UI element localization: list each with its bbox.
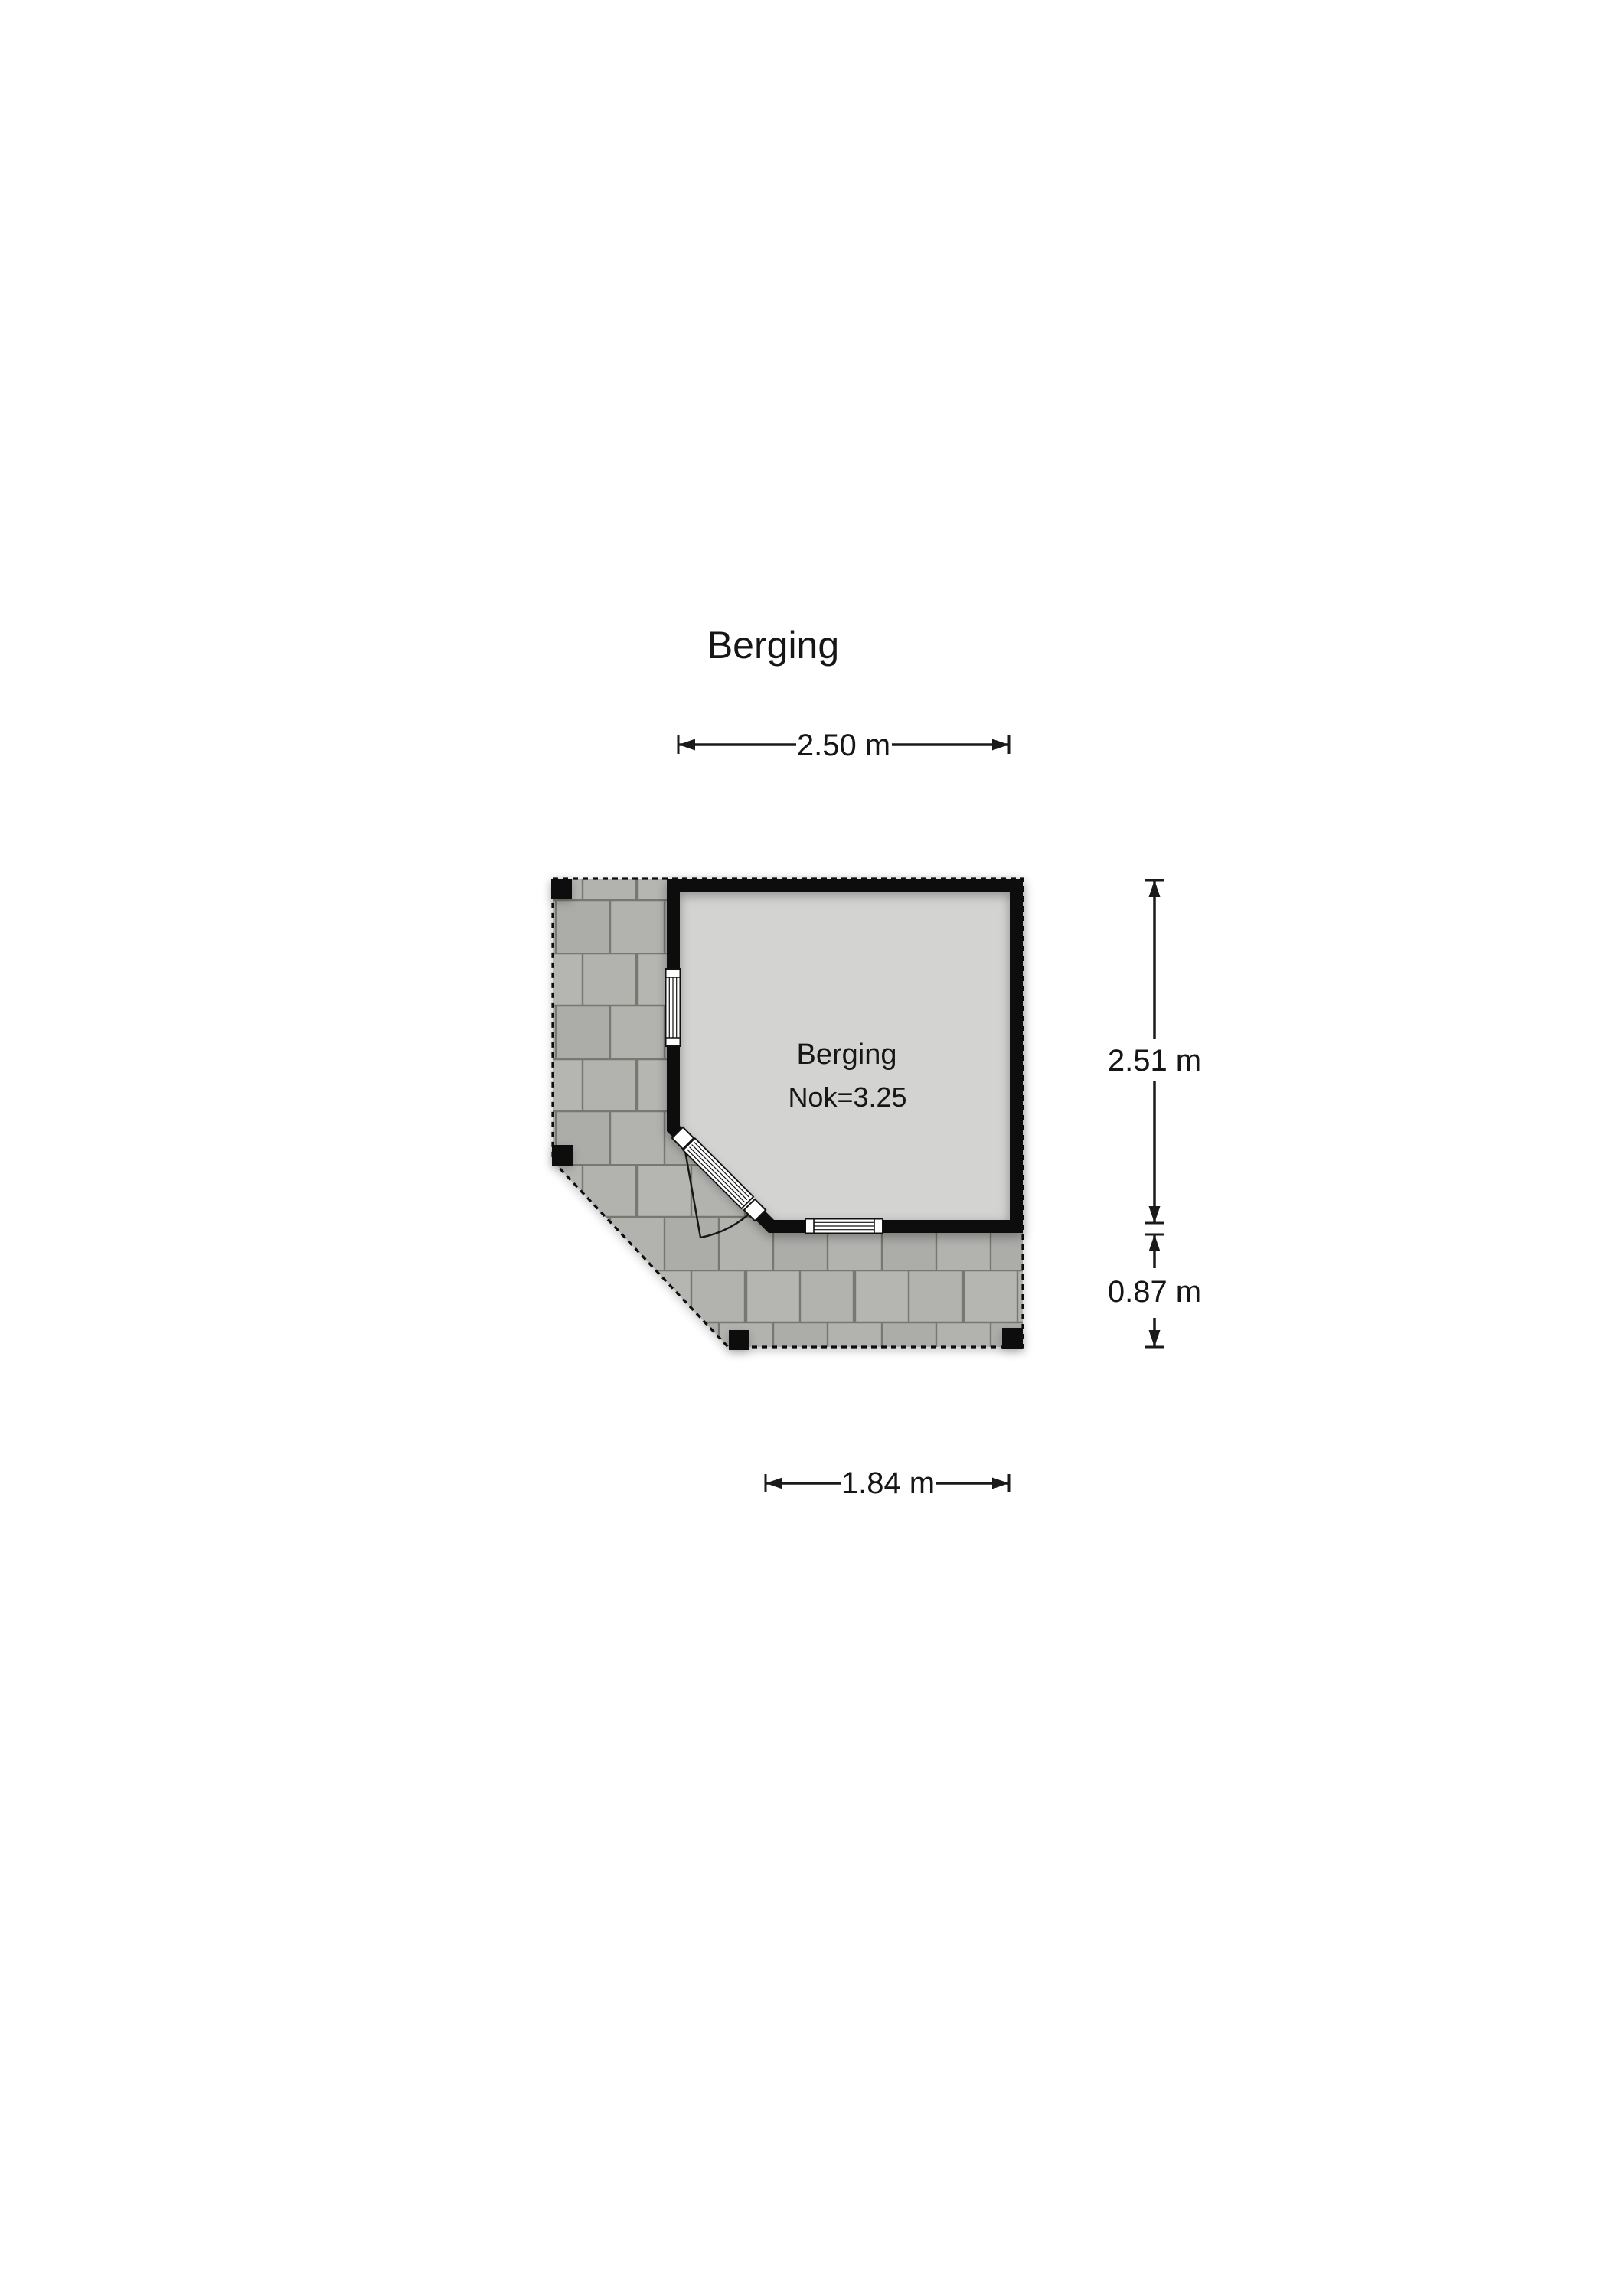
room-name-label: Berging [797,1039,897,1071]
dimension-top: 2.50 m [678,729,1009,762]
corner-post-mid-left [552,1145,573,1166]
window-left [666,969,681,1046]
corner-post-bottom-right [1002,1328,1023,1349]
dimension-right-lower-label: 0.87 m [1108,1275,1201,1309]
arrow-left-icon [678,739,695,751]
floorplan: Berging Nok=3.25 [551,879,1023,1350]
corner-post-bottom-center [729,1330,749,1350]
arrow-down-icon [1149,1206,1161,1223]
arrow-up-icon [1149,1234,1161,1251]
dimension-right-lower: 0.87 m [1108,1234,1201,1347]
arrow-up-icon [1149,880,1161,897]
dimension-bottom-label: 1.84 m [841,1466,935,1500]
arrow-right-icon [992,1478,1009,1489]
arrow-down-icon [1149,1330,1161,1347]
dimension-right-upper-label: 2.51 m [1108,1044,1201,1078]
dimension-top-label: 2.50 m [797,729,890,762]
page-title: Berging [707,624,839,667]
arrow-left-icon [766,1478,782,1489]
dimension-right-upper: 2.51 m [1108,880,1201,1223]
room-ridge-label: Nok=3.25 [788,1081,906,1113]
dimension-bottom: 1.84 m [766,1466,1009,1500]
corner-post-top-left [551,879,572,899]
arrow-right-icon [992,739,1009,751]
floorplan-page: Berging [0,0,1623,2296]
floorplan-canvas: Berging [0,0,1623,2296]
window-bottom [805,1219,883,1234]
